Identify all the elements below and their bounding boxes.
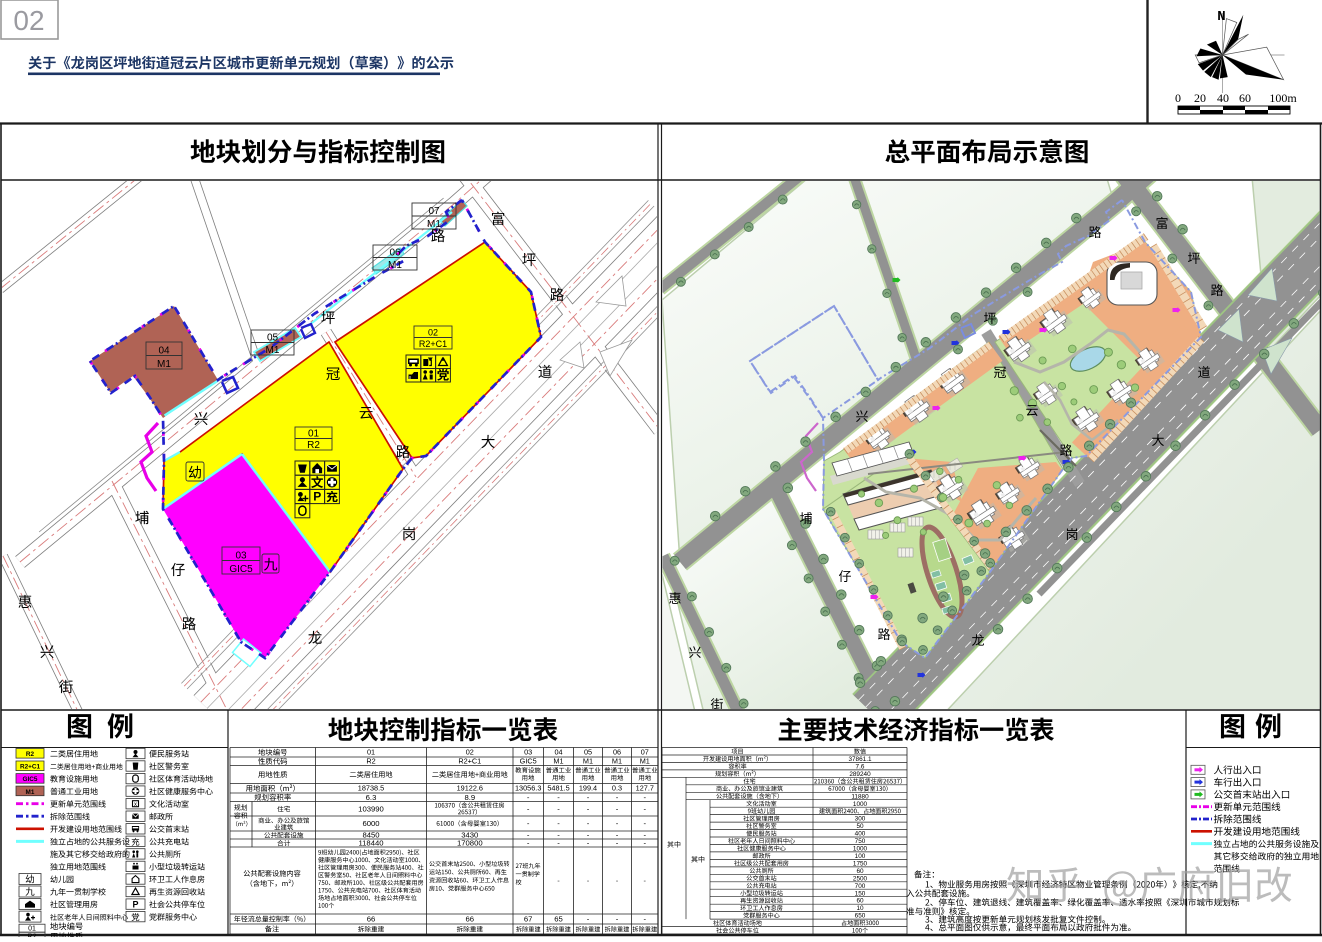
svg-text:M1: M1 bbox=[427, 219, 441, 230]
svg-text:-: - bbox=[644, 915, 647, 924]
svg-text:M1: M1 bbox=[157, 359, 171, 370]
svg-text:R2+C1: R2+C1 bbox=[419, 339, 447, 349]
svg-text:02: 02 bbox=[428, 327, 438, 337]
svg-text:05: 05 bbox=[267, 332, 279, 343]
svg-text:150: 150 bbox=[855, 890, 866, 897]
svg-text:02: 02 bbox=[13, 5, 44, 36]
svg-text:M1: M1 bbox=[266, 345, 280, 356]
svg-text:-: - bbox=[587, 915, 590, 924]
svg-text:170800: 170800 bbox=[457, 839, 483, 848]
svg-text:M1: M1 bbox=[388, 260, 402, 271]
svg-text:06: 06 bbox=[613, 748, 621, 757]
svg-text:750: 750 bbox=[855, 838, 866, 845]
svg-text:118440: 118440 bbox=[358, 839, 383, 848]
svg-text:700: 700 bbox=[855, 883, 866, 890]
svg-text:13056.3: 13056.3 bbox=[515, 784, 541, 793]
svg-text:R2+C1: R2+C1 bbox=[20, 764, 41, 771]
svg-text:P: P bbox=[313, 490, 321, 504]
svg-text:127.7: 127.7 bbox=[636, 784, 654, 793]
svg-text:-: - bbox=[616, 915, 619, 924]
svg-text:60: 60 bbox=[856, 868, 864, 875]
svg-text:37861.1: 37861.1 bbox=[848, 756, 872, 763]
svg-text:M1: M1 bbox=[583, 757, 593, 766]
svg-text:-: - bbox=[557, 804, 560, 813]
svg-text:-: - bbox=[557, 793, 560, 802]
svg-text:0.3: 0.3 bbox=[612, 784, 622, 793]
svg-text:x: x bbox=[134, 802, 137, 808]
svg-text:60: 60 bbox=[1239, 91, 1251, 105]
svg-text:04: 04 bbox=[554, 748, 562, 757]
svg-text:-: - bbox=[616, 804, 619, 813]
svg-text:-: - bbox=[527, 839, 530, 848]
svg-text:N: N bbox=[1217, 9, 1225, 25]
svg-text:-: - bbox=[616, 819, 619, 828]
svg-text:6000: 6000 bbox=[362, 819, 379, 828]
svg-text:1000: 1000 bbox=[853, 846, 868, 853]
svg-text:2500: 2500 bbox=[853, 875, 868, 882]
svg-text:R2: R2 bbox=[26, 751, 35, 758]
svg-text:02: 02 bbox=[466, 748, 474, 757]
svg-text:-: - bbox=[644, 793, 647, 802]
svg-text:-: - bbox=[616, 839, 619, 848]
svg-text:-: - bbox=[616, 793, 619, 802]
svg-text:199.4: 199.4 bbox=[579, 784, 597, 793]
svg-text:M1: M1 bbox=[640, 757, 650, 766]
svg-text:04: 04 bbox=[158, 345, 170, 356]
svg-text:-: - bbox=[587, 839, 590, 848]
svg-text:400: 400 bbox=[855, 831, 866, 838]
svg-text:GIC5: GIC5 bbox=[520, 757, 537, 766]
svg-text:-: - bbox=[587, 819, 590, 828]
svg-text:100m: 100m bbox=[1269, 91, 1297, 105]
svg-text:8.9: 8.9 bbox=[464, 793, 475, 802]
svg-text:R2+C1: R2+C1 bbox=[458, 757, 481, 766]
svg-text:-: - bbox=[527, 819, 530, 828]
svg-text:18738.5: 18738.5 bbox=[358, 784, 384, 793]
svg-text:60: 60 bbox=[856, 898, 864, 905]
svg-text:103990: 103990 bbox=[358, 804, 384, 813]
svg-text:-: - bbox=[644, 804, 647, 813]
svg-text:03: 03 bbox=[524, 748, 532, 757]
svg-text:-: - bbox=[644, 819, 647, 828]
svg-text:GIC5: GIC5 bbox=[229, 564, 253, 575]
svg-text:05: 05 bbox=[584, 748, 592, 757]
svg-text:11880: 11880 bbox=[851, 793, 869, 800]
svg-text:65: 65 bbox=[554, 915, 563, 924]
svg-text:-: - bbox=[527, 804, 530, 813]
svg-text:6.3: 6.3 bbox=[366, 793, 377, 802]
svg-text:100: 100 bbox=[855, 853, 866, 860]
svg-text:300: 300 bbox=[855, 816, 866, 823]
svg-text:67: 67 bbox=[524, 915, 533, 924]
svg-text:03: 03 bbox=[235, 550, 247, 561]
svg-text:01: 01 bbox=[28, 926, 36, 933]
svg-text:R2: R2 bbox=[307, 440, 320, 451]
svg-text:-: - bbox=[644, 839, 647, 848]
svg-text:-: - bbox=[557, 819, 560, 828]
svg-text:66: 66 bbox=[466, 915, 475, 924]
svg-text:19122.6: 19122.6 bbox=[457, 784, 483, 793]
svg-text:M1: M1 bbox=[612, 757, 622, 766]
svg-text:1750: 1750 bbox=[853, 860, 868, 867]
svg-text:07: 07 bbox=[428, 206, 440, 217]
svg-text:650: 650 bbox=[855, 913, 866, 920]
svg-text:07: 07 bbox=[641, 748, 649, 757]
svg-text:1000: 1000 bbox=[853, 801, 868, 808]
svg-text:P: P bbox=[132, 899, 138, 909]
svg-text:-: - bbox=[557, 839, 560, 848]
svg-text:20: 20 bbox=[1194, 91, 1206, 105]
svg-text:66: 66 bbox=[367, 915, 376, 924]
svg-text:01: 01 bbox=[367, 748, 375, 757]
svg-text:R2: R2 bbox=[366, 757, 375, 766]
svg-text:R2: R2 bbox=[28, 934, 37, 937]
svg-text:40: 40 bbox=[1217, 91, 1229, 105]
svg-text:0: 0 bbox=[1175, 91, 1181, 105]
svg-text:01: 01 bbox=[308, 428, 320, 439]
svg-text:GIC5: GIC5 bbox=[23, 776, 38, 783]
svg-text:-: - bbox=[587, 804, 590, 813]
svg-text:M1: M1 bbox=[26, 789, 35, 796]
svg-text:M1: M1 bbox=[553, 757, 563, 766]
svg-text:10: 10 bbox=[856, 905, 864, 912]
svg-text:-: - bbox=[527, 793, 530, 802]
svg-text:-: - bbox=[587, 793, 590, 802]
svg-text:7.6: 7.6 bbox=[856, 763, 865, 770]
svg-text:5481.5: 5481.5 bbox=[547, 784, 569, 793]
svg-text:06: 06 bbox=[389, 247, 401, 258]
svg-text:50: 50 bbox=[856, 823, 864, 830]
svg-text:289240: 289240 bbox=[849, 771, 871, 778]
